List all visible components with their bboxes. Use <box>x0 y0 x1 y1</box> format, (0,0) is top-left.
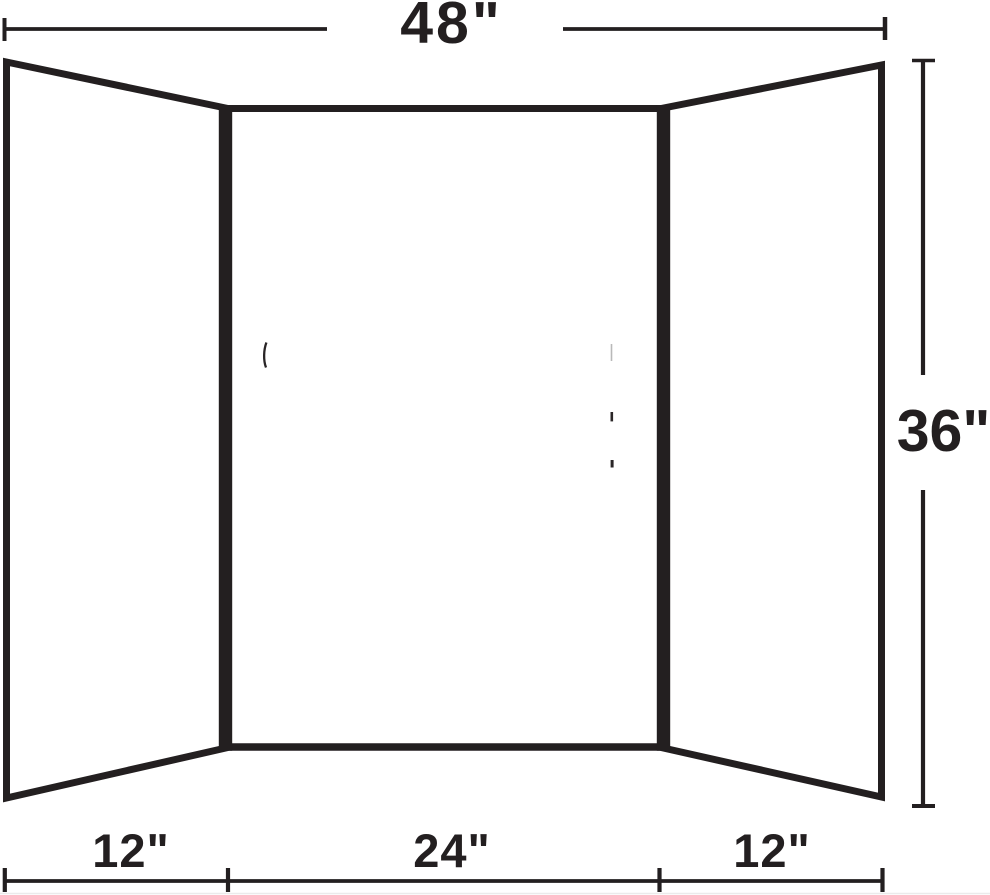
svg-text:48": 48" <box>400 0 503 56</box>
svg-text:12": 12" <box>92 824 170 877</box>
svg-text:36": 36" <box>897 398 990 464</box>
svg-text:24": 24" <box>413 824 491 877</box>
svg-text:12": 12" <box>733 824 811 877</box>
